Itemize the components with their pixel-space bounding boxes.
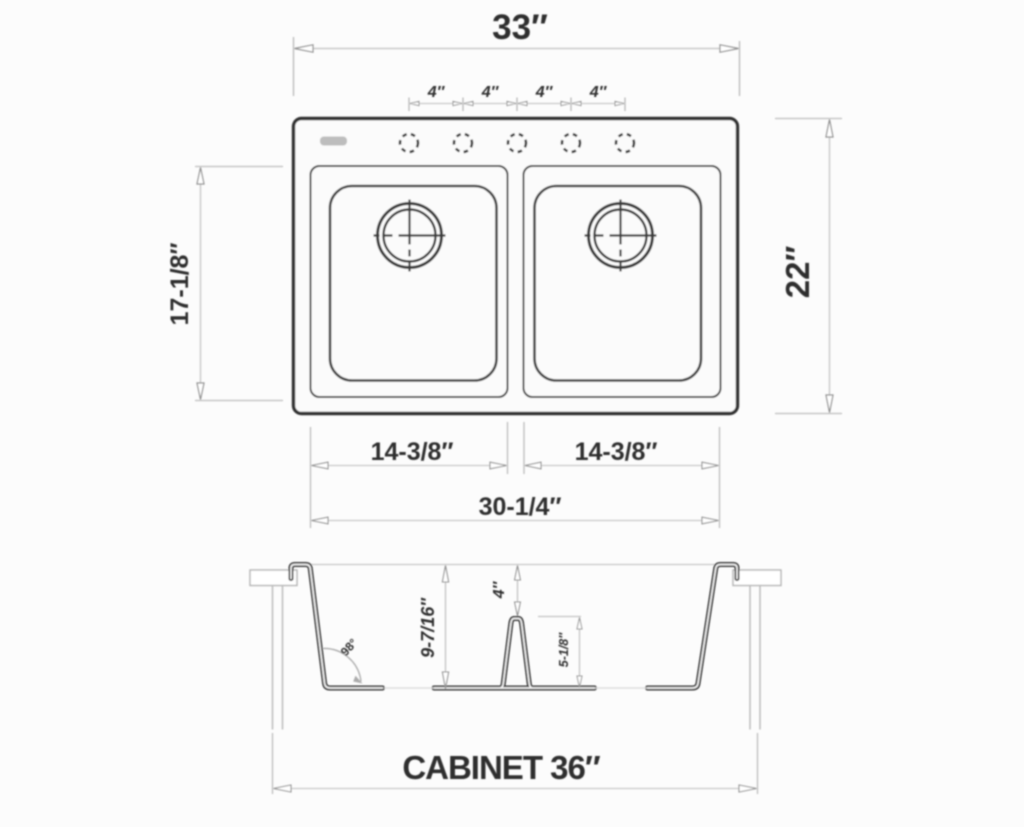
- svg-text:4″: 4″: [491, 580, 508, 599]
- svg-text:4″: 4″: [589, 84, 608, 101]
- svg-text:30-1/4″: 30-1/4″: [479, 493, 562, 521]
- svg-text:4″: 4″: [535, 84, 554, 101]
- svg-text:9-7/16″: 9-7/16″: [418, 597, 438, 658]
- svg-text:4″: 4″: [481, 84, 500, 101]
- svg-text:CABINET 36″: CABINET 36″: [402, 749, 601, 786]
- svg-text:4″: 4″: [427, 84, 446, 101]
- svg-text:5-1/8″: 5-1/8″: [557, 632, 571, 667]
- svg-text:17-1/8″: 17-1/8″: [166, 243, 194, 326]
- svg-text:14-3/8″: 14-3/8″: [575, 438, 658, 466]
- svg-text:33″: 33″: [492, 8, 548, 47]
- svg-text:14-3/8″: 14-3/8″: [371, 438, 454, 466]
- svg-text:22″: 22″: [779, 246, 816, 299]
